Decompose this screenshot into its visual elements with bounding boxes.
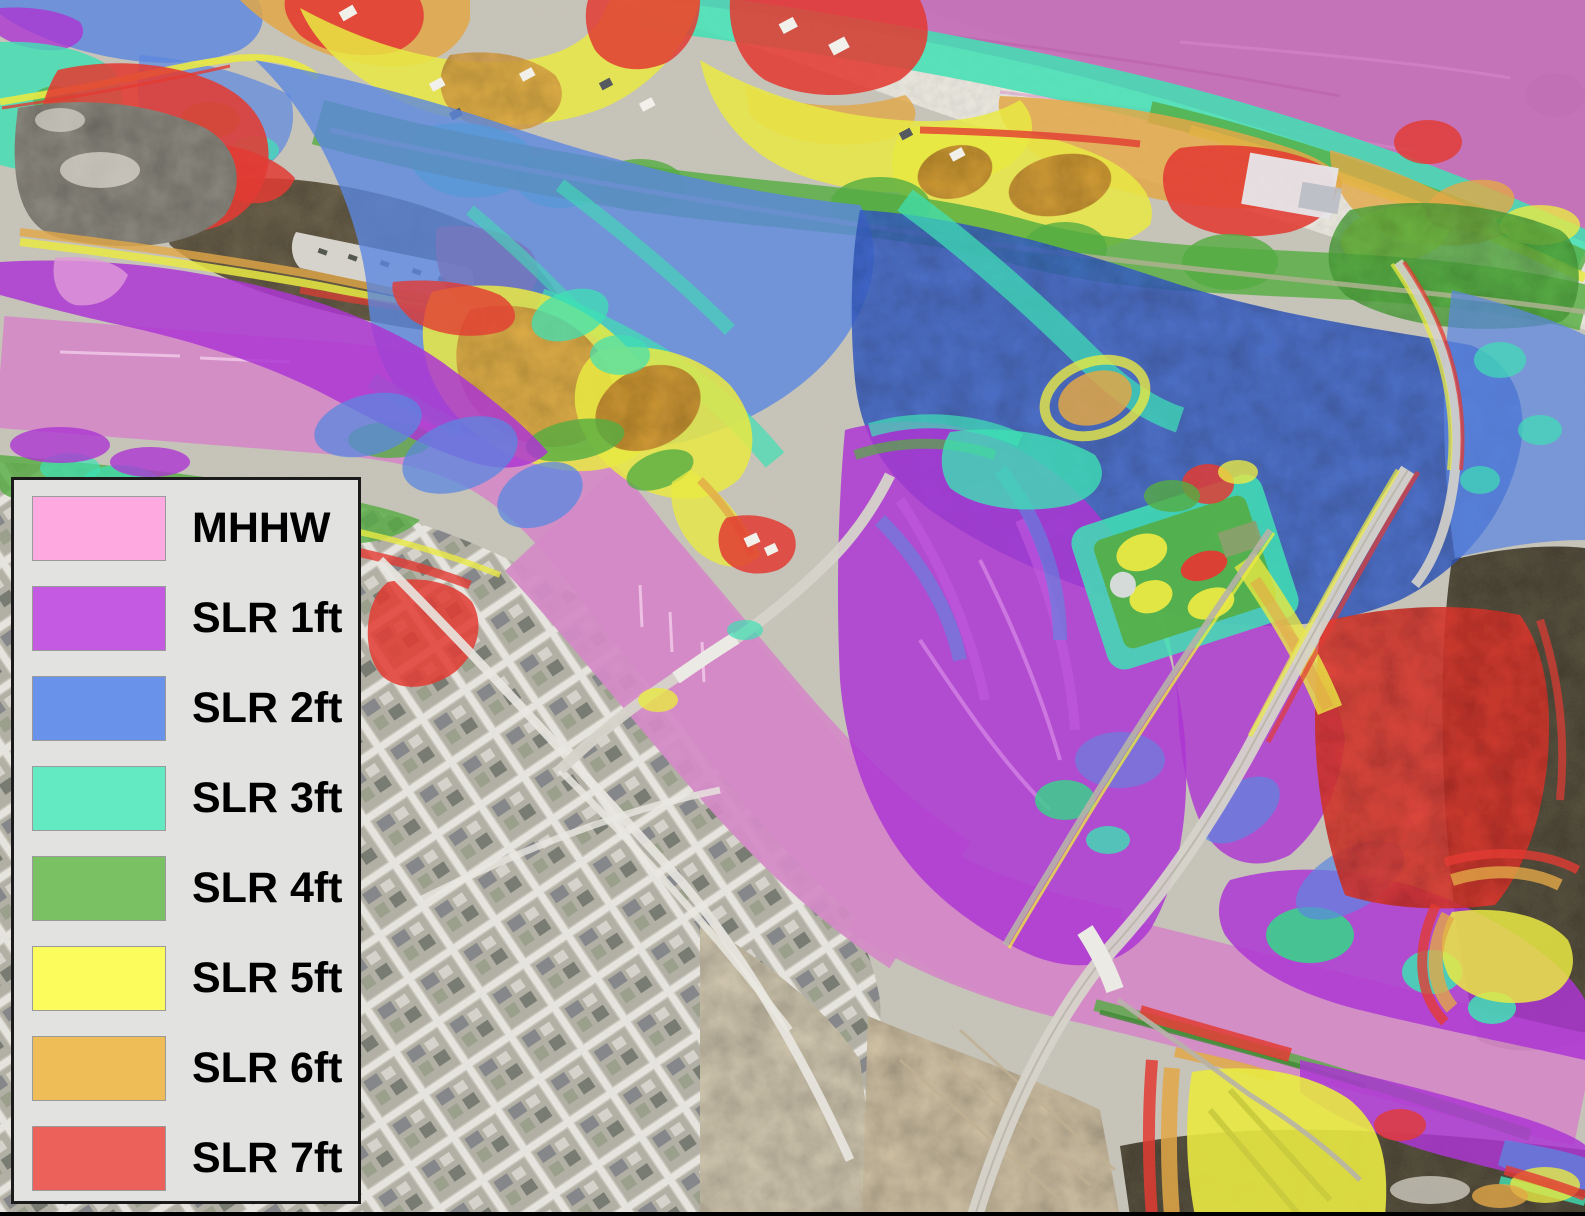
map-legend: MHHWSLR 1ftSLR 2ftSLR 3ftSLR 4ftSLR 5ftS… bbox=[11, 477, 361, 1204]
legend-swatch-slr-5ft bbox=[32, 946, 166, 1011]
screenshot-root: MHHWSLR 1ftSLR 2ftSLR 3ftSLR 4ftSLR 5ftS… bbox=[0, 0, 1585, 1216]
pier-line bbox=[640, 585, 642, 627]
slr3-right-blob bbox=[1518, 415, 1562, 445]
legend-item-slr-5ft: SLR 5ft bbox=[32, 946, 358, 1011]
slr5-bridge-toe bbox=[638, 688, 678, 712]
legend-label-slr-5ft: SLR 5ft bbox=[192, 957, 343, 1000]
slr3-right-blob bbox=[1474, 342, 1526, 378]
legend-item-slr-3ft: SLR 3ft bbox=[32, 766, 358, 831]
legend-label-mhhw: MHHW bbox=[192, 507, 331, 550]
slr6-corner-blob bbox=[1472, 1184, 1528, 1208]
legend-item-slr-2ft: SLR 2ft bbox=[32, 676, 358, 741]
slr3-bridge-toe bbox=[727, 620, 763, 640]
slr7-forest-block bbox=[1315, 607, 1549, 908]
legend-label-slr-3ft: SLR 3ft bbox=[192, 777, 343, 820]
slr1-bank-bit bbox=[110, 447, 190, 477]
legend-swatch-mhhw bbox=[32, 496, 166, 561]
slr3-marsh-pond bbox=[1086, 826, 1130, 854]
legend-item-mhhw: MHHW bbox=[32, 496, 358, 561]
legend-swatch-slr-1ft bbox=[32, 586, 166, 651]
slr3-right-blob bbox=[1460, 466, 1500, 494]
slr6-field-strip bbox=[1169, 1068, 1172, 1216]
legend-item-slr-7ft: SLR 7ft bbox=[32, 1126, 358, 1191]
legend-label-slr-1ft: SLR 1ft bbox=[192, 597, 343, 640]
legend-swatch-slr-4ft bbox=[32, 856, 166, 921]
pier-line bbox=[670, 612, 672, 652]
slr5-forest-pocket bbox=[1218, 460, 1258, 484]
legend-label-slr-2ft: SLR 2ft bbox=[192, 687, 343, 730]
legend-item-slr-1ft: SLR 1ft bbox=[32, 586, 358, 651]
slr4-forest-pocket bbox=[1144, 480, 1200, 512]
legend-label-slr-6ft: SLR 6ft bbox=[192, 1047, 343, 1090]
spoil-sand-patch bbox=[60, 152, 140, 188]
legend-label-slr-7ft: SLR 7ft bbox=[192, 1137, 343, 1180]
slr7-corner-bit bbox=[1374, 1109, 1426, 1141]
legend-label-slr-4ft: SLR 4ft bbox=[192, 867, 343, 910]
legend-item-slr-4ft: SLR 4ft bbox=[32, 856, 358, 921]
legend-swatch-slr-7ft bbox=[32, 1126, 166, 1191]
slr3-marina-patch bbox=[590, 335, 650, 375]
spoil-sand-patch bbox=[35, 108, 85, 132]
slr4-bump bbox=[1182, 234, 1278, 290]
legend-item-slr-6ft: SLR 6ft bbox=[32, 1036, 358, 1101]
slr7-field-strip-left bbox=[1149, 1060, 1152, 1216]
legend-swatch-slr-3ft bbox=[32, 766, 166, 831]
legend-swatch-slr-2ft bbox=[32, 676, 166, 741]
slr1-bank-bit bbox=[10, 427, 110, 463]
slr7-dune-patch bbox=[1394, 120, 1462, 164]
slr2-right-strip bbox=[1444, 290, 1585, 558]
legend-swatch-slr-6ft bbox=[32, 1036, 166, 1101]
